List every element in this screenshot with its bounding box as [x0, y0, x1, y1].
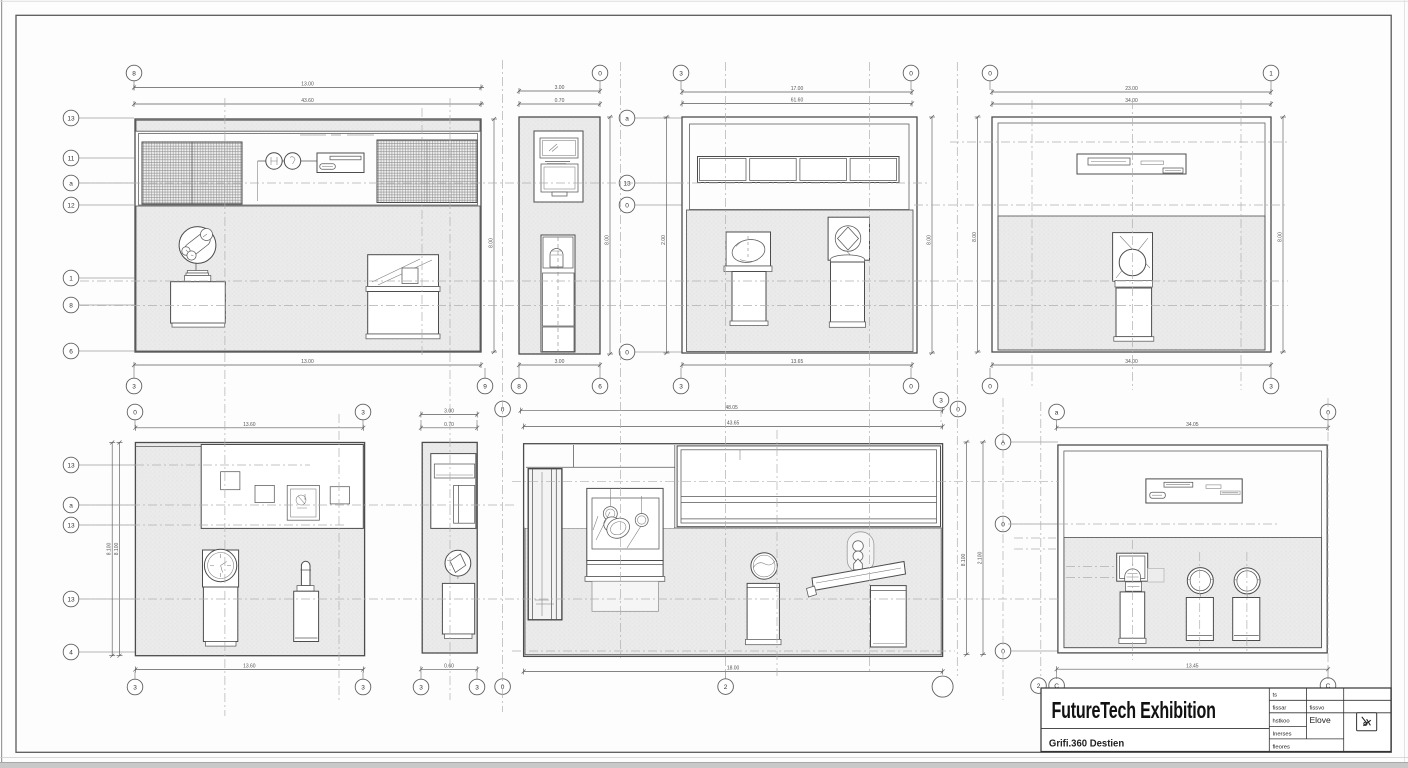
- svg-text:13: 13: [67, 462, 75, 469]
- svg-text:3: 3: [939, 397, 943, 404]
- svg-text:a: a: [69, 180, 73, 187]
- svg-text:a: a: [69, 502, 73, 509]
- svg-text:13.00: 13.00: [301, 82, 314, 88]
- svg-text:6: 6: [598, 383, 602, 390]
- svg-text:2: 2: [724, 684, 728, 691]
- svg-text:a: a: [1055, 409, 1059, 416]
- svg-text:8: 8: [517, 383, 521, 390]
- svg-text:3: 3: [679, 383, 683, 390]
- svg-text:0: 0: [909, 383, 913, 390]
- svg-text:23.00: 23.00: [1125, 86, 1138, 92]
- svg-text:13.00: 13.00: [301, 359, 314, 365]
- svg-text:0: 0: [625, 349, 629, 356]
- svg-text:61.60: 61.60: [791, 98, 804, 104]
- svg-text:3: 3: [132, 383, 136, 390]
- svg-text:8.100: 8.100: [961, 554, 967, 567]
- svg-text:3: 3: [361, 409, 365, 416]
- svg-text:43.65: 43.65: [727, 421, 740, 427]
- svg-text:8: 8: [69, 302, 73, 309]
- svg-text:0: 0: [598, 70, 602, 77]
- svg-text:12: 12: [67, 202, 75, 209]
- svg-text:2: 2: [1037, 683, 1041, 690]
- svg-text:6: 6: [69, 348, 73, 355]
- svg-text:43.60: 43.60: [301, 98, 314, 104]
- svg-text:8.00: 8.00: [605, 235, 611, 245]
- svg-text:ts: ts: [1273, 693, 1278, 699]
- svg-text:0: 0: [133, 409, 137, 416]
- svg-text:13: 13: [623, 180, 631, 187]
- svg-text:8.100: 8.100: [107, 543, 113, 556]
- svg-text:1: 1: [1269, 70, 1273, 77]
- svg-text:0.60: 0.60: [444, 664, 454, 670]
- svg-text:0: 0: [909, 70, 913, 77]
- svg-text:13.45: 13.45: [1186, 663, 1199, 669]
- svg-text:1: 1: [69, 275, 73, 282]
- svg-text:8.00: 8.00: [1278, 232, 1284, 242]
- svg-text:fissar: fissar: [1273, 706, 1287, 712]
- svg-text:2.00: 2.00: [661, 235, 667, 245]
- svg-text:8.00: 8.00: [489, 238, 495, 248]
- svg-text:13.60: 13.60: [243, 422, 256, 428]
- svg-text:0: 0: [988, 383, 992, 390]
- svg-text:8.100: 8.100: [114, 543, 120, 556]
- svg-text:Inerses: Inerses: [1273, 732, 1292, 738]
- svg-text:fleores: fleores: [1273, 745, 1291, 751]
- svg-text:0: 0: [625, 202, 629, 209]
- svg-text:fissvo: fissvo: [1310, 706, 1325, 712]
- svg-text:3: 3: [679, 70, 683, 77]
- svg-text:3: 3: [1269, 383, 1273, 390]
- svg-text:13: 13: [67, 522, 75, 529]
- svg-text:0.70: 0.70: [555, 98, 565, 104]
- svg-text:34.05: 34.05: [1186, 422, 1199, 428]
- svg-text:0: 0: [988, 70, 992, 77]
- svg-text:3: 3: [475, 684, 479, 691]
- svg-text:8: 8: [132, 70, 136, 77]
- svg-text:8.00: 8.00: [972, 232, 978, 242]
- svg-text:0.70: 0.70: [444, 422, 454, 428]
- svg-text:9: 9: [483, 383, 487, 390]
- svg-text:3: 3: [361, 684, 365, 691]
- svg-text:13.60: 13.60: [243, 664, 256, 670]
- svg-text:3.00: 3.00: [555, 359, 565, 365]
- svg-text:4: 4: [69, 649, 73, 656]
- svg-text:a: a: [625, 115, 629, 122]
- svg-text:17.00: 17.00: [791, 86, 804, 92]
- svg-text:3: 3: [133, 684, 137, 691]
- svg-text:Elove: Elove: [1310, 715, 1332, 725]
- svg-text:8.00: 8.00: [927, 235, 933, 245]
- svg-text:34.00: 34.00: [1125, 98, 1138, 104]
- svg-text:11: 11: [68, 155, 75, 162]
- svg-text:2.100: 2.100: [978, 552, 984, 565]
- svg-text:0: 0: [956, 406, 960, 413]
- svg-text:13.65: 13.65: [791, 359, 804, 365]
- svg-text:Grifi.360 Destien: Grifi.360 Destien: [1049, 738, 1124, 750]
- svg-text:3.00: 3.00: [555, 85, 565, 91]
- svg-text:34.00: 34.00: [1125, 359, 1138, 365]
- svg-text:48.05: 48.05: [725, 405, 738, 411]
- svg-text:3.00: 3.00: [444, 409, 454, 415]
- svg-text:18.00: 18.00: [727, 666, 740, 672]
- svg-text:13: 13: [67, 115, 75, 122]
- svg-text:13: 13: [67, 596, 75, 603]
- svg-text:FutureTech Exhibition: FutureTech Exhibition: [1052, 698, 1216, 724]
- svg-text:3: 3: [419, 684, 423, 691]
- svg-text:hstkoo: hstkoo: [1273, 719, 1290, 725]
